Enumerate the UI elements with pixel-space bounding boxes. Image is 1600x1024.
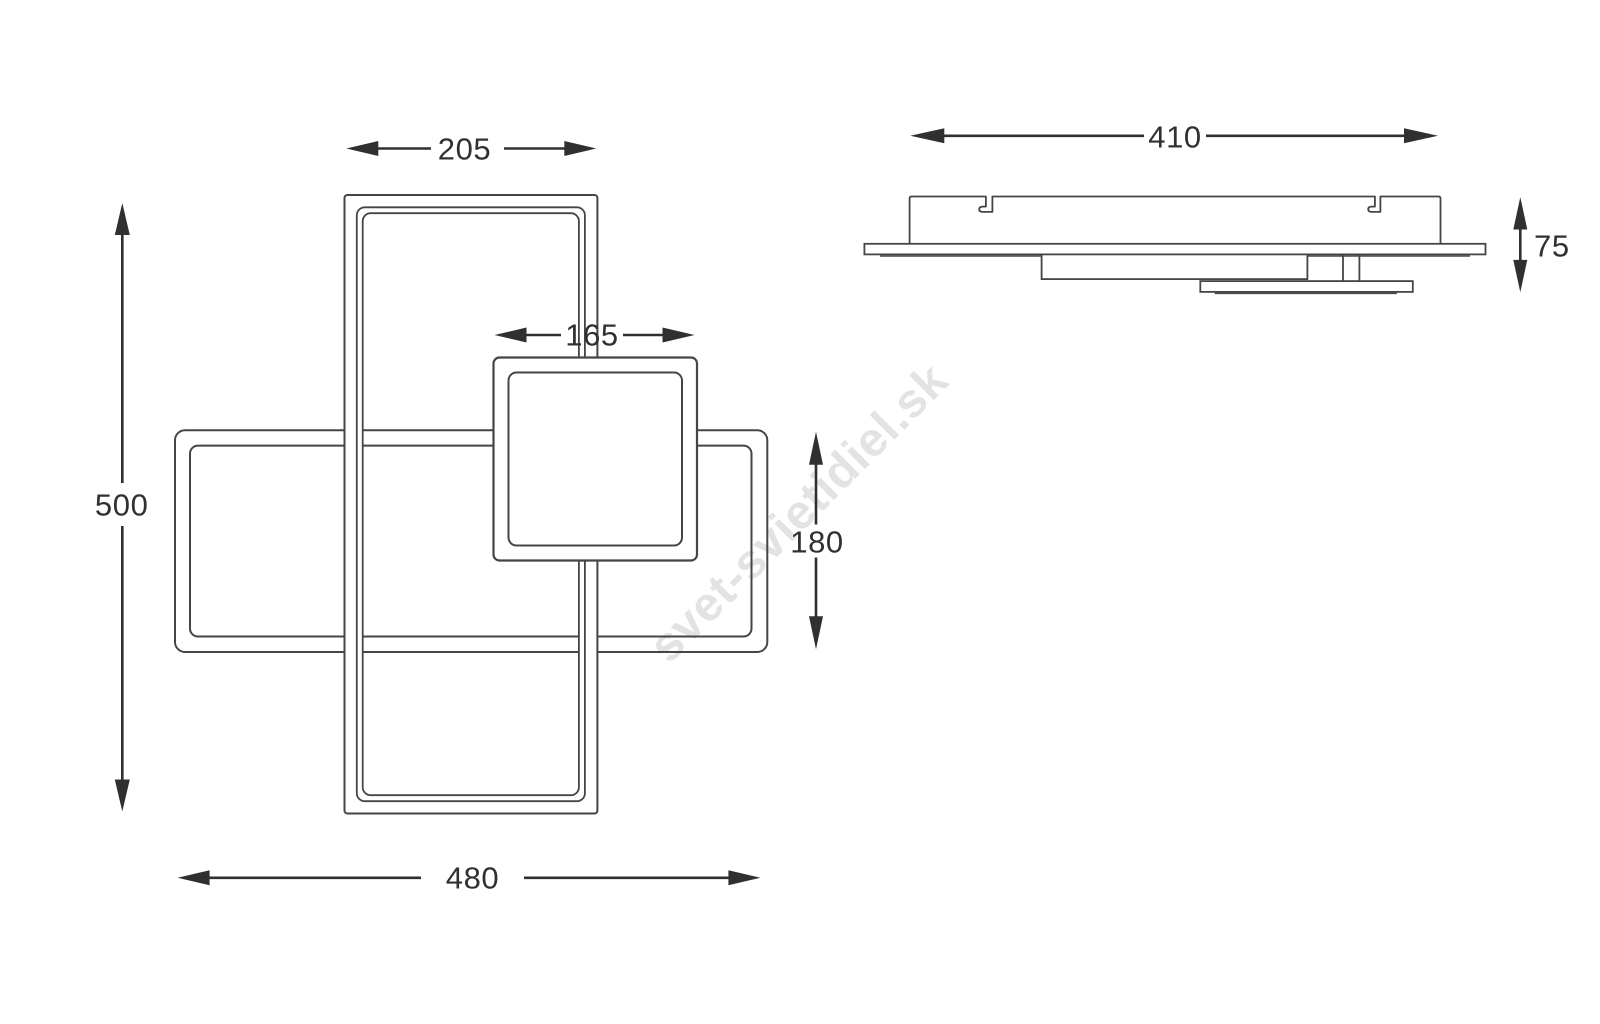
svg-text:165: 165 <box>565 318 619 353</box>
svg-text:500: 500 <box>95 488 149 523</box>
svg-text:180: 180 <box>790 525 844 560</box>
svg-text:480: 480 <box>446 860 500 895</box>
svg-text:75: 75 <box>1534 229 1570 264</box>
svg-text:205: 205 <box>438 132 492 167</box>
svg-text:410: 410 <box>1148 119 1202 154</box>
